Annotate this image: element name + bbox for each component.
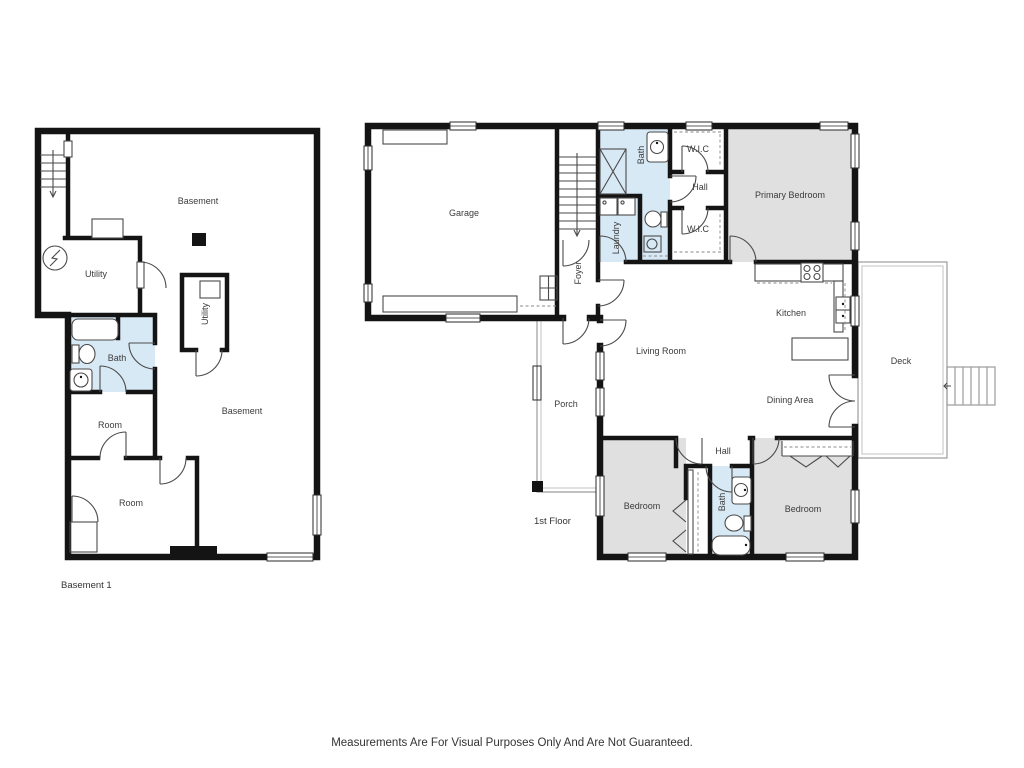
room-label-bedroom-right: Bedroom — [785, 504, 822, 514]
room-label-hall-lower: Hall — [715, 446, 731, 456]
sink-counter-icon — [70, 369, 92, 391]
laundry-fixtures — [600, 198, 635, 215]
dryer-icon — [618, 198, 635, 215]
utility-equipment — [92, 219, 123, 238]
room-label-porch: Porch — [554, 399, 578, 409]
water-heater — [192, 233, 206, 246]
toilet-icon — [725, 515, 743, 531]
room-label-wic-lower: W.I.C — [687, 224, 709, 234]
french-door-icon — [829, 375, 855, 401]
basement-floor-title: Basement 1 — [61, 580, 112, 591]
room-label-dining-area: Dining Area — [767, 395, 814, 405]
room-label-hall-upper: Hall — [692, 182, 708, 192]
room-label-laundry: Laundry — [611, 221, 621, 254]
stove-icon — [801, 263, 823, 282]
toilet-icon — [79, 345, 95, 364]
first-floor-stairs — [559, 153, 596, 236]
basement-windows — [267, 495, 321, 561]
closet-equipment — [200, 281, 220, 298]
bedroom-right-closet-fill — [782, 440, 853, 456]
basement-landing — [70, 522, 97, 552]
bathtub-icon — [72, 319, 118, 340]
bathtub-icon — [712, 536, 750, 555]
room-label-basement-main: Basement — [178, 196, 219, 206]
garage-workbench — [383, 130, 447, 144]
basement-plan: Basement Utility Bath Utility Basement R… — [38, 131, 321, 591]
room-label-primary-bedroom: Primary Bedroom — [755, 190, 825, 200]
room-label-bath-lower: Bath — [717, 493, 727, 512]
room-label-kitchen: Kitchen — [776, 308, 806, 318]
basement-chimney — [170, 546, 217, 558]
first-floor-plan: Garage Bath W.I.C Hall W.I.C Laundry Foy… — [364, 122, 995, 561]
room-label-basement-bath: Bath — [108, 353, 127, 363]
room-label-basement-lower: Basement — [222, 406, 263, 416]
toilet-tank-icon — [72, 345, 79, 363]
floor-plan-page: Basement Utility Bath Utility Basement R… — [0, 0, 1024, 768]
deck-stairs — [947, 367, 995, 405]
garage-fixtures — [383, 130, 557, 312]
disclaimer-caption: Measurements Are For Visual Purposes Onl… — [331, 737, 693, 749]
basement-stairs — [40, 150, 66, 197]
porch-post — [532, 481, 543, 492]
room-label-living-room: Living Room — [636, 346, 686, 356]
deck-outline — [858, 262, 995, 458]
french-door-icon — [829, 401, 855, 427]
room-label-utility-closet: Utility — [200, 303, 210, 325]
room-label-utility: Utility — [85, 269, 107, 279]
basement-stair-door-leaf — [64, 141, 72, 157]
room-label-deck: Deck — [891, 356, 912, 366]
toilet-tank-icon — [744, 516, 751, 531]
room-label-bedroom-left: Bedroom — [624, 501, 661, 511]
room-label-bath-upper: Bath — [636, 146, 646, 165]
toilet-icon — [645, 211, 661, 227]
room-label-garage: Garage — [449, 208, 479, 218]
room-label-room-lower: Room — [119, 498, 143, 508]
electrical-panel-icon — [43, 246, 67, 270]
kitchen-island — [792, 338, 848, 360]
bedroom-left-fill — [600, 438, 686, 557]
toilet-tank-icon — [661, 212, 667, 227]
first-floor-title: 1st Floor — [534, 516, 571, 527]
room-label-foyer: Foyer — [573, 261, 583, 284]
floor-plan-drawing: Basement Utility Bath Utility Basement R… — [0, 0, 1024, 768]
kitchen-counter — [755, 264, 843, 281]
garage-counter — [383, 296, 517, 312]
room-label-room-upper: Room — [98, 420, 122, 430]
washer-icon — [600, 198, 617, 215]
garage-shelf — [540, 276, 557, 300]
room-label-wic-upper: W.I.C — [687, 144, 709, 154]
